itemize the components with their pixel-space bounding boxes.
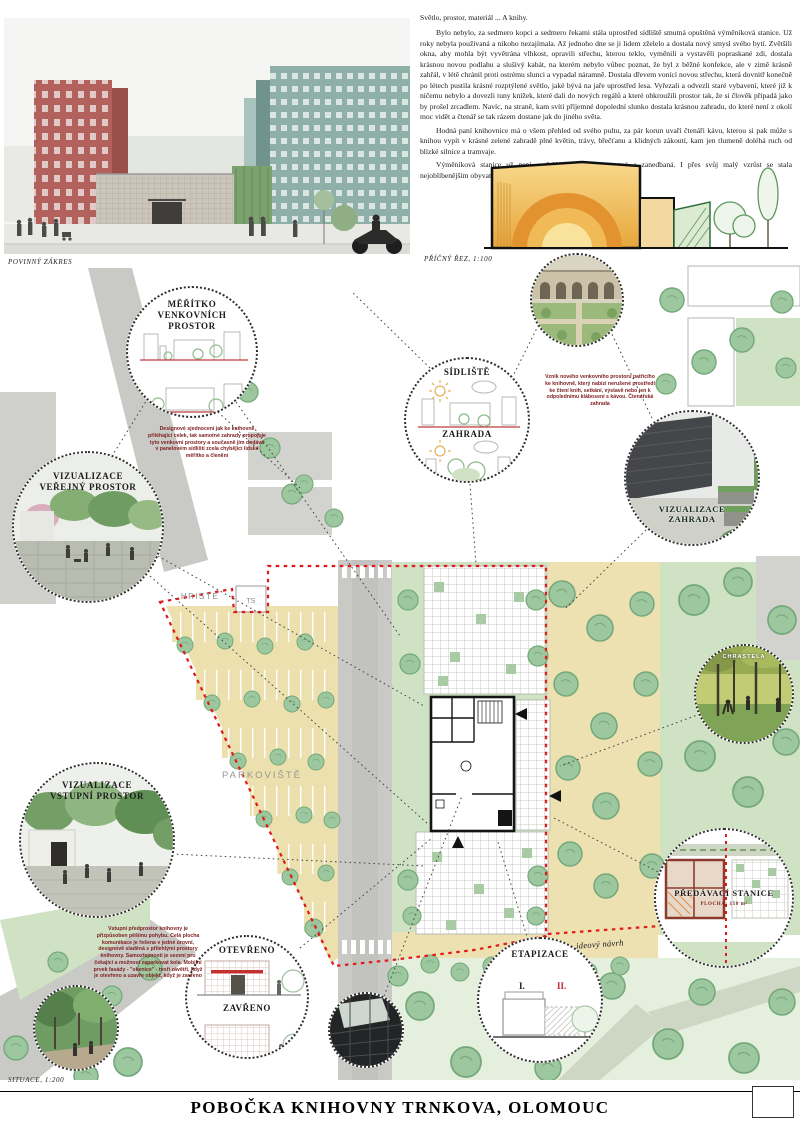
bottom-rule <box>0 1091 800 1092</box>
meritko-label-1: MĚŘÍTKO <box>168 299 217 309</box>
stamp-box <box>752 1086 794 1118</box>
heat-station-plan <box>656 830 794 968</box>
callout-park-path-photo <box>33 985 119 1071</box>
ts-label: TS <box>247 598 256 605</box>
callout-verejny-prostor: VIZUALIZACE VEŘEJNÝ PROSTOR <box>12 451 164 603</box>
sidliste-label: SÍDLIŠTĚ <box>406 367 528 378</box>
skylight-photo <box>330 994 404 1068</box>
park-photo-caption: CHRASTELA <box>696 654 792 660</box>
parking-area <box>166 606 338 963</box>
section-drawing <box>482 152 790 254</box>
predavaci-plocha-label: PLOCHA: 150 m² <box>656 902 792 908</box>
design-note: Designové sjednocení jak ke knihovně při… <box>148 426 266 460</box>
board-title: POBOČKA KNIHOVNY TRNKOVA, OLOMOUC <box>0 1098 800 1118</box>
section-annex <box>640 198 674 248</box>
street-visualization <box>4 18 410 254</box>
garden-note: Vznik nového venkovního prostoru patřící… <box>542 374 658 408</box>
etapizace-label: ETAPIZACE <box>479 949 601 960</box>
callout-meritko: MĚŘÍTKO VENKOVNÍCH PROSTOR <box>126 286 258 418</box>
predavaci-label: PŘEDÁVACÍ STANICE <box>656 888 792 898</box>
vstupni-label-1: VIZUALIZACE <box>62 780 132 790</box>
callout-etapizace: ETAPIZACE I. II. <box>477 937 603 1063</box>
parking-label: PARKOVIŠTĚ <box>222 770 302 781</box>
story-title: Světlo, prostor, materiál ... A knihy. <box>420 13 792 23</box>
park-path-photo <box>35 987 119 1071</box>
street <box>4 244 410 254</box>
park-photo <box>696 646 794 744</box>
presentation-board: POVINNÝ ZÁKRES Světlo, prostor, materiál… <box>0 0 800 1132</box>
callout-predavaci-stanice: PŘEDÁVACÍ STANICE PLOCHA: 150 m² <box>654 828 794 968</box>
entry-note: Vstupní předprostor knihovny je přizpůso… <box>92 926 204 980</box>
cloister-garden-photo <box>532 255 624 347</box>
stage-1-label: I. <box>519 981 525 991</box>
zahrada-label: ZAHRADA <box>406 429 528 440</box>
meritko-label-2: VENKOVNÍCH <box>157 310 226 320</box>
viz-zahrada-label-1: VIZUALIZACE <box>659 504 726 514</box>
situace-label: SITUACE, 1:200 <box>8 1076 64 1084</box>
callout-park-photo: CHRASTELA <box>694 644 794 744</box>
garden-render <box>626 412 760 546</box>
callout-cloister-photo <box>530 253 624 347</box>
verejny-label-1: VIZUALIZACE <box>53 471 123 481</box>
vstupni-label-2: VSTUPNÍ PROSTOR <box>50 791 144 801</box>
stage-2-label: II. <box>557 981 566 991</box>
section-label: PŘÍČNÝ ŘEZ, 1:100 <box>424 255 492 263</box>
callout-vstupni-prostor: VIZUALIZACE VSTUPNÍ PROSTOR <box>19 762 175 918</box>
verejny-label-2: VEŘEJNÝ PROSTOR <box>39 482 136 492</box>
meritko-label-3: PROSTOR <box>168 321 216 331</box>
callout-skylight-photo <box>328 992 404 1068</box>
zavreno-label: ZAVŘENO <box>187 1003 307 1014</box>
otevreno-label: OTEVŘENO <box>187 945 307 956</box>
section-greenhouse <box>674 202 710 248</box>
story-paragraph-1: Bylo nebylo, za sedmero kopci a sedmero … <box>420 28 792 122</box>
viz-zahrada-label-2: ZAHRADA <box>668 514 715 524</box>
callout-sidliste-zahrada: SÍDLIŠTĚ ZAHRADA <box>404 357 530 483</box>
callout-vizualizace-zahrada: VIZUALIZACE ZAHRADA <box>624 410 760 546</box>
hriste-label: HRISTE <box>181 592 219 601</box>
